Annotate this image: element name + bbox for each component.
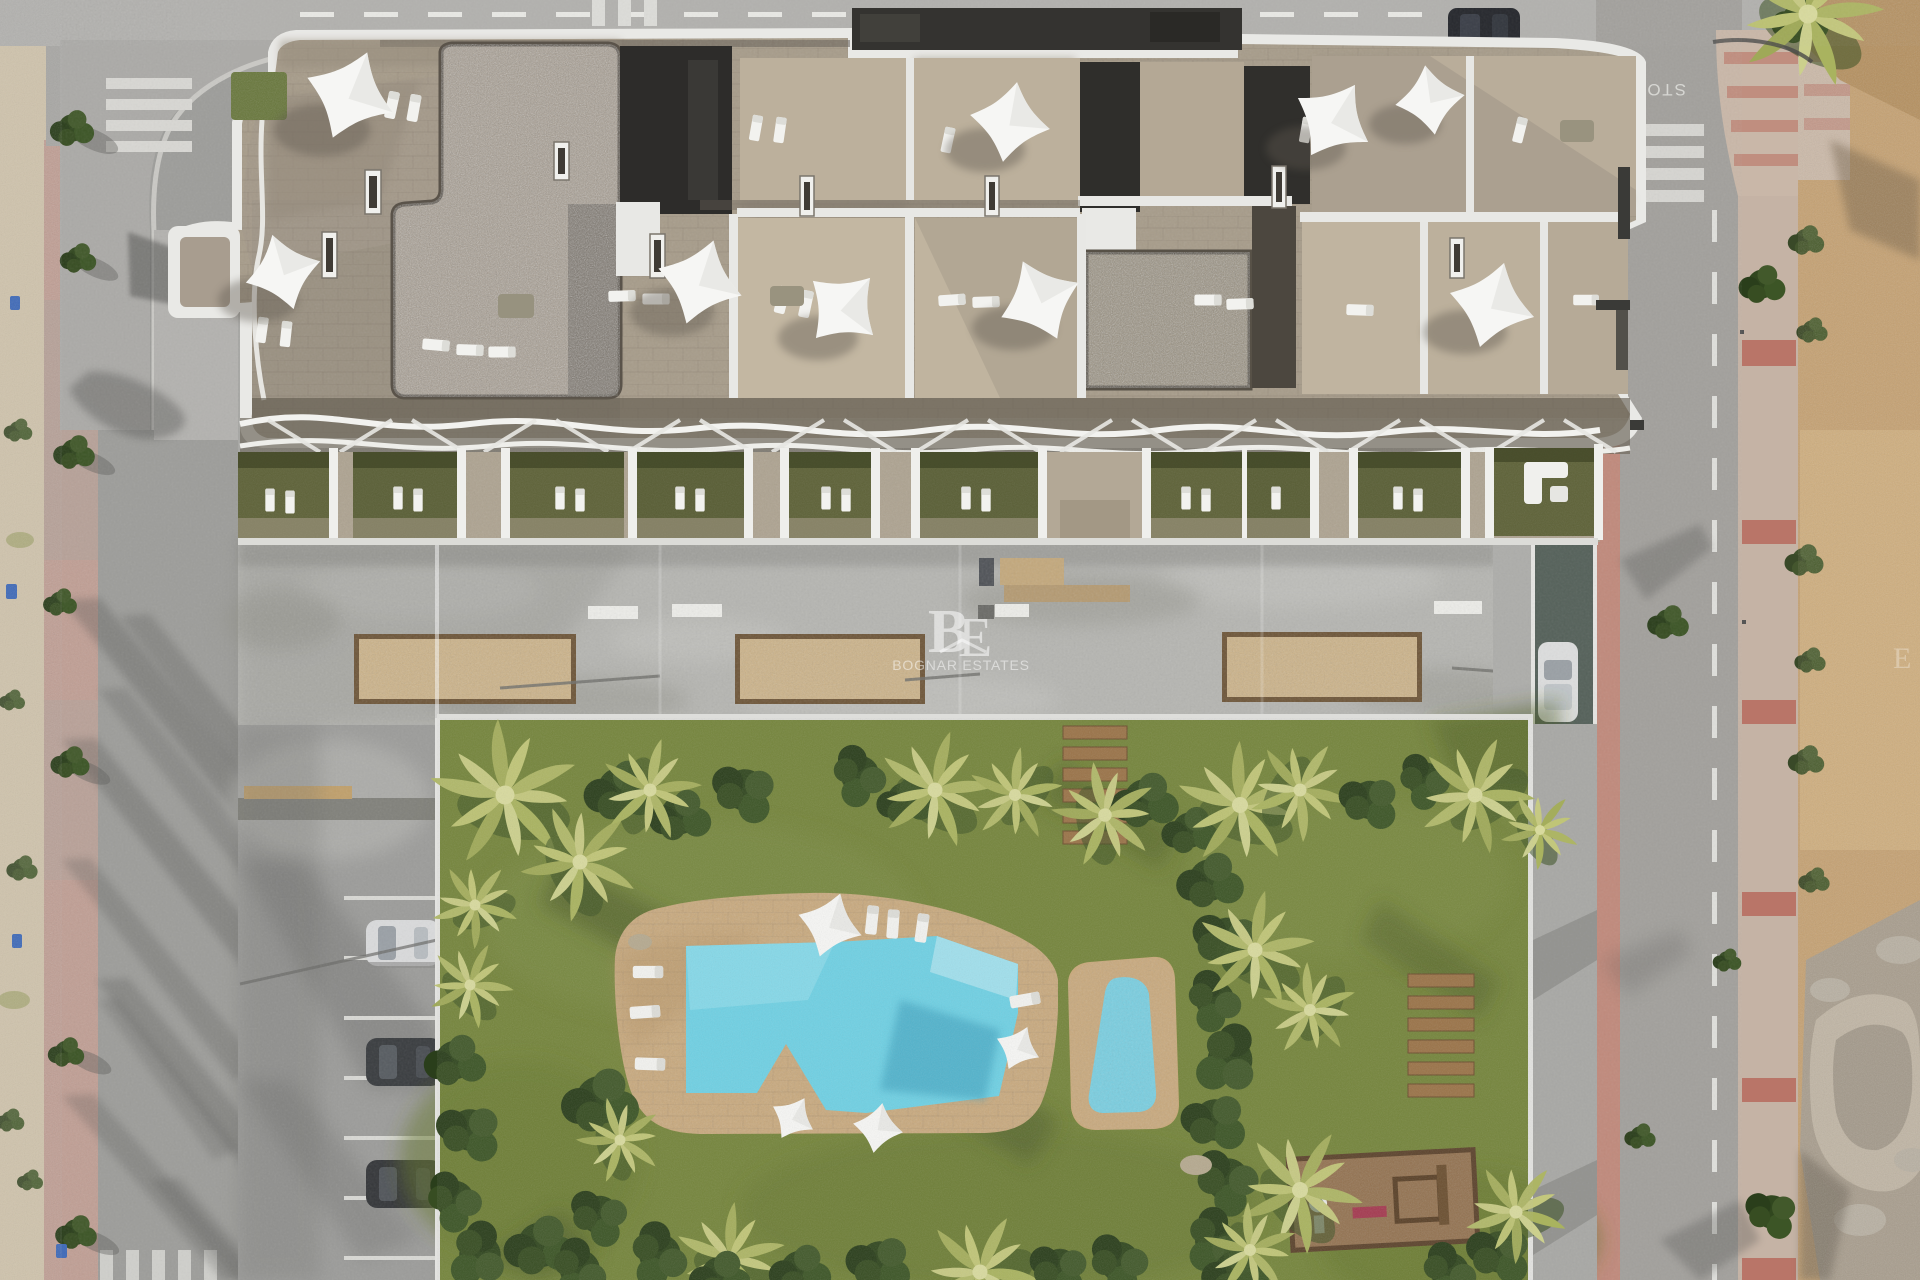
svg-text:BOGNAR ESTATES: BOGNAR ESTATES (892, 657, 1029, 673)
svg-text:E: E (1893, 642, 1911, 675)
